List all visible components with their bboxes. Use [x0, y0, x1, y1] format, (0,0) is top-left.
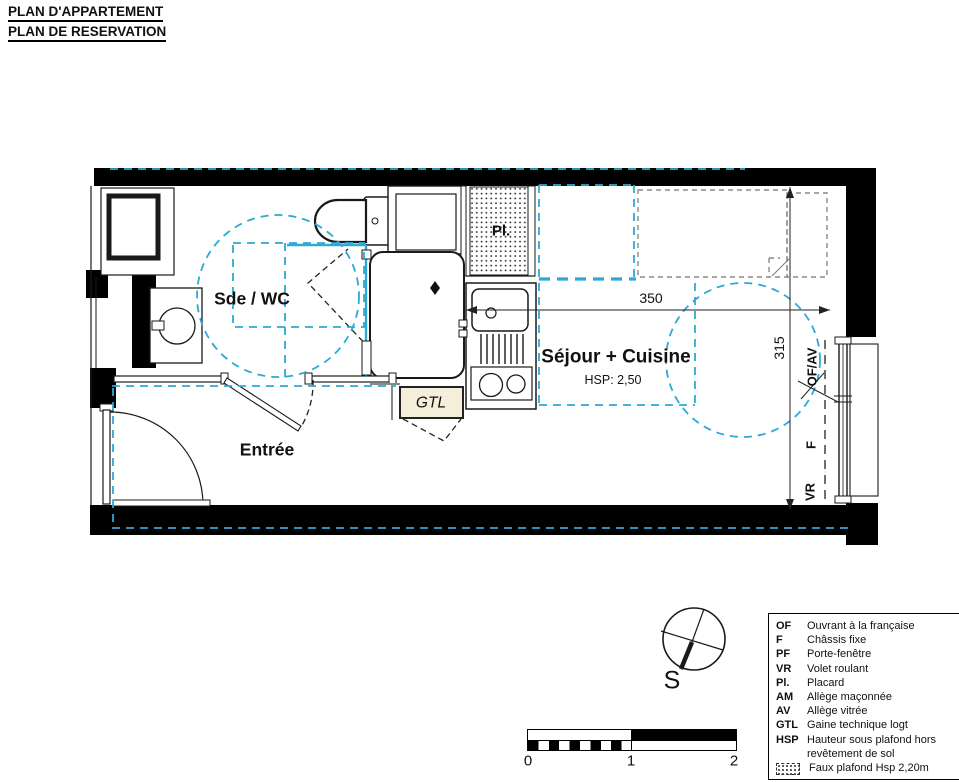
legend-row-av: AV Allège vitrée [776, 704, 956, 718]
interior-partitions [114, 373, 400, 420]
legend-row-f: F Châssis fixe [776, 633, 956, 647]
window-label-f: F [805, 441, 818, 449]
legend-row-gtl: GTL Gaine technique logt [776, 718, 956, 732]
compass-icon [661, 608, 725, 670]
label-hsp: HSP: 2,50 [585, 374, 642, 387]
washbasin [150, 288, 202, 363]
scale-tick-0: 0 [524, 754, 532, 769]
legend-row-am: AM Allège maçonnée [776, 690, 956, 704]
scale-bar [527, 729, 737, 751]
scale-tick-2: 2 [730, 754, 738, 769]
room-label-sejour: Séjour + Cuisine [541, 348, 690, 367]
kitchen-unit [459, 283, 536, 409]
bathroom-door [224, 249, 370, 431]
legend-row-pl: Pl. Placard [776, 676, 956, 690]
legend-row-of: OF Ouvrant à la française [776, 619, 956, 633]
legend-box: OF Ouvrant à la française F Châssis fixe… [768, 613, 959, 780]
compass-south-label: S [664, 669, 681, 694]
window-label-vr: VR [804, 483, 817, 501]
washing-machine [388, 186, 464, 254]
faux-plafond-swatch-icon [776, 763, 800, 775]
label-gtl: GTL [416, 395, 446, 411]
window-label-of-av: OF/AV [806, 348, 819, 387]
legend-row-vr: VR Volet roulant [776, 662, 956, 676]
dim-350: 350 [639, 291, 662, 305]
legend-row-hsp: HSP Hauteur sous plafond hors revêtement… [776, 733, 956, 761]
legend-row-faux-plafond: Faux plafond Hsp 2,20m [776, 761, 956, 775]
label-placard: Pl. [492, 224, 510, 239]
false-ceiling-outlines [638, 190, 827, 277]
shower-tray [370, 252, 464, 378]
roller-shutter-housing [850, 344, 878, 496]
room-label-sde-wc: Sde / WC [214, 290, 290, 308]
dim-315: 315 [772, 336, 786, 359]
toilet [315, 197, 390, 245]
entrance-door [100, 404, 210, 506]
technical-shaft [101, 188, 174, 275]
room-label-entree: Entrée [240, 441, 294, 459]
floor-plan-page: PLAN D'APPARTEMENT PLAN DE RESERVATION [0, 0, 959, 782]
scale-tick-1: 1 [627, 754, 635, 769]
legend-row-pf: PF Porte-fenêtre [776, 647, 956, 661]
door-swing-arc [110, 412, 203, 505]
